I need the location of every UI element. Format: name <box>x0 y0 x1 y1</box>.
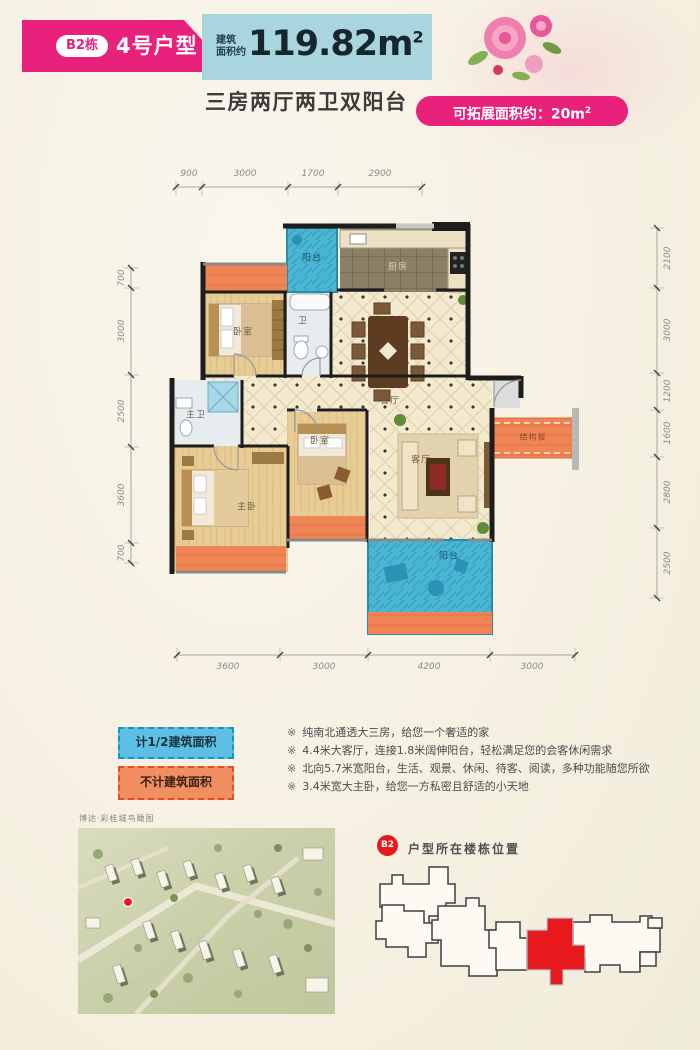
dim-left-2: 3000 <box>117 320 127 343</box>
feature-marker: ※ <box>287 778 296 796</box>
feature-list: ※纯南北通透大三房，给您一个奢适的家 ※4.4米大客厅，连接1.8米阔伸阳台，轻… <box>287 724 659 796</box>
feature-marker: ※ <box>287 724 296 742</box>
sitemap-caption: 博达·彩桂城鸟瞰图 <box>79 813 155 824</box>
dim-top-1: 900 <box>180 169 197 179</box>
feature-marker: ※ <box>287 742 296 760</box>
dim-right-4: 1600 <box>663 422 673 445</box>
bay-master-orange <box>176 546 286 572</box>
bay-top-orange <box>203 264 287 292</box>
area-sup: 2 <box>413 27 423 46</box>
room-label-bedroom-top: 卧室 <box>233 325 253 338</box>
flower-decoration <box>455 0 575 95</box>
dim-bottom-3: 4200 <box>418 662 441 672</box>
feature-text: 4.4米大客厅，连接1.8米阔伸阳台，轻松满足您的会客休闲需求 <box>302 742 612 760</box>
expand-sup: 2 <box>585 106 591 116</box>
location-b2-badge: B2 <box>377 835 398 856</box>
dim-left-3: 2500 <box>117 400 127 423</box>
room-label-balcony-bottom: 阳台 <box>439 549 459 562</box>
bay-mid-orange <box>287 516 367 540</box>
room-label-dining: 餐厅 <box>380 394 400 407</box>
dim-bottom-4: 3000 <box>521 662 544 672</box>
room-label-balcony-top: 阳台 <box>302 251 322 264</box>
dim-top-2: 3000 <box>234 169 257 179</box>
building-badge: B2栋 <box>56 35 108 57</box>
room-label-bedroom-mid: 卧室 <box>310 434 330 447</box>
area-banner: 建筑 面积约 119.82m2 <box>202 14 432 80</box>
dim-right-2: 3000 <box>663 319 673 342</box>
room-label-master-bath: 主卫 <box>186 408 206 421</box>
feature-text: 北向5.7米宽阳台，生活、观景、休闲、待客、阅读，多种功能随您所欲 <box>302 760 650 778</box>
dim-left-5: 700 <box>117 544 127 561</box>
legend-half-area: 计1/2建筑面积 <box>118 727 234 759</box>
dim-top-3: 1700 <box>302 169 325 179</box>
expandable-area-pill: 可拓展面积约：20m2 <box>416 96 628 126</box>
unit-title: 4号户型 <box>116 20 198 72</box>
feature-text: 3.4米宽大主卧，给您一方私密且舒适的小天地 <box>302 778 529 796</box>
feature-item: ※3.4米宽大主卧，给您一方私密且舒适的小天地 <box>287 778 659 796</box>
dim-right-5: 2800 <box>663 481 673 504</box>
room-label-master-bedroom: 主卧 <box>237 500 257 513</box>
expand-label: 可拓展面积约：20m <box>453 107 585 123</box>
sitemap-b2-marker <box>124 898 133 907</box>
dim-left-1: 700 <box>117 269 127 286</box>
room-label-kitchen: 厨房 <box>388 260 408 273</box>
floorplan-drawing <box>120 170 680 720</box>
layout-subtitle: 三房两厅两卫双阳台 <box>205 86 408 116</box>
dim-left-4: 3600 <box>117 484 127 507</box>
location-label: 户型所在楼栋位置 <box>408 840 520 857</box>
building-key-plan <box>373 858 668 1018</box>
balcony-bottom-orange <box>368 612 492 634</box>
feature-marker: ※ <box>287 760 296 778</box>
legend-excluded-area: 不计建筑面积 <box>118 766 234 800</box>
area-prefix-line1: 建筑 <box>216 35 246 47</box>
feature-item: ※纯南北通透大三房，给您一个奢适的家 <box>287 724 659 742</box>
room-label-living: 客厅 <box>411 453 431 466</box>
page: B2栋 4号户型 建筑 面积约 119.82m2 三房两厅两卫双阳台 可拓展面积… <box>0 0 700 1050</box>
feature-item: ※4.4米大客厅，连接1.8米阔伸阳台，轻松满足您的会客休闲需求 <box>287 742 659 760</box>
dim-right-3: 1200 <box>663 380 673 403</box>
feature-item: ※北向5.7米宽阳台，生活、观景、休闲、待客、阅读，多种功能随您所欲 <box>287 760 659 778</box>
room-label-bath: 卫 <box>298 314 308 327</box>
sitemap-aerial-image <box>78 828 335 1014</box>
area-prefix-line2: 面积约 <box>216 47 246 59</box>
dim-right-1: 2100 <box>663 247 673 270</box>
dim-bottom-2: 3000 <box>313 662 336 672</box>
feature-text: 纯南北通透大三房，给您一个奢适的家 <box>302 724 489 742</box>
dim-top-4: 2900 <box>369 169 392 179</box>
area-value: 119.82m2 <box>248 24 423 64</box>
dim-right-6: 2500 <box>663 552 673 575</box>
area-number: 119.82m <box>248 24 413 64</box>
room-label-slab: 结构板 <box>520 432 547 443</box>
building-ribbon: B2栋 4号户型 <box>22 20 202 72</box>
area-prefix: 建筑 面积约 <box>216 35 246 59</box>
dim-bottom-1: 3600 <box>217 662 240 672</box>
slab-bar <box>572 408 579 470</box>
